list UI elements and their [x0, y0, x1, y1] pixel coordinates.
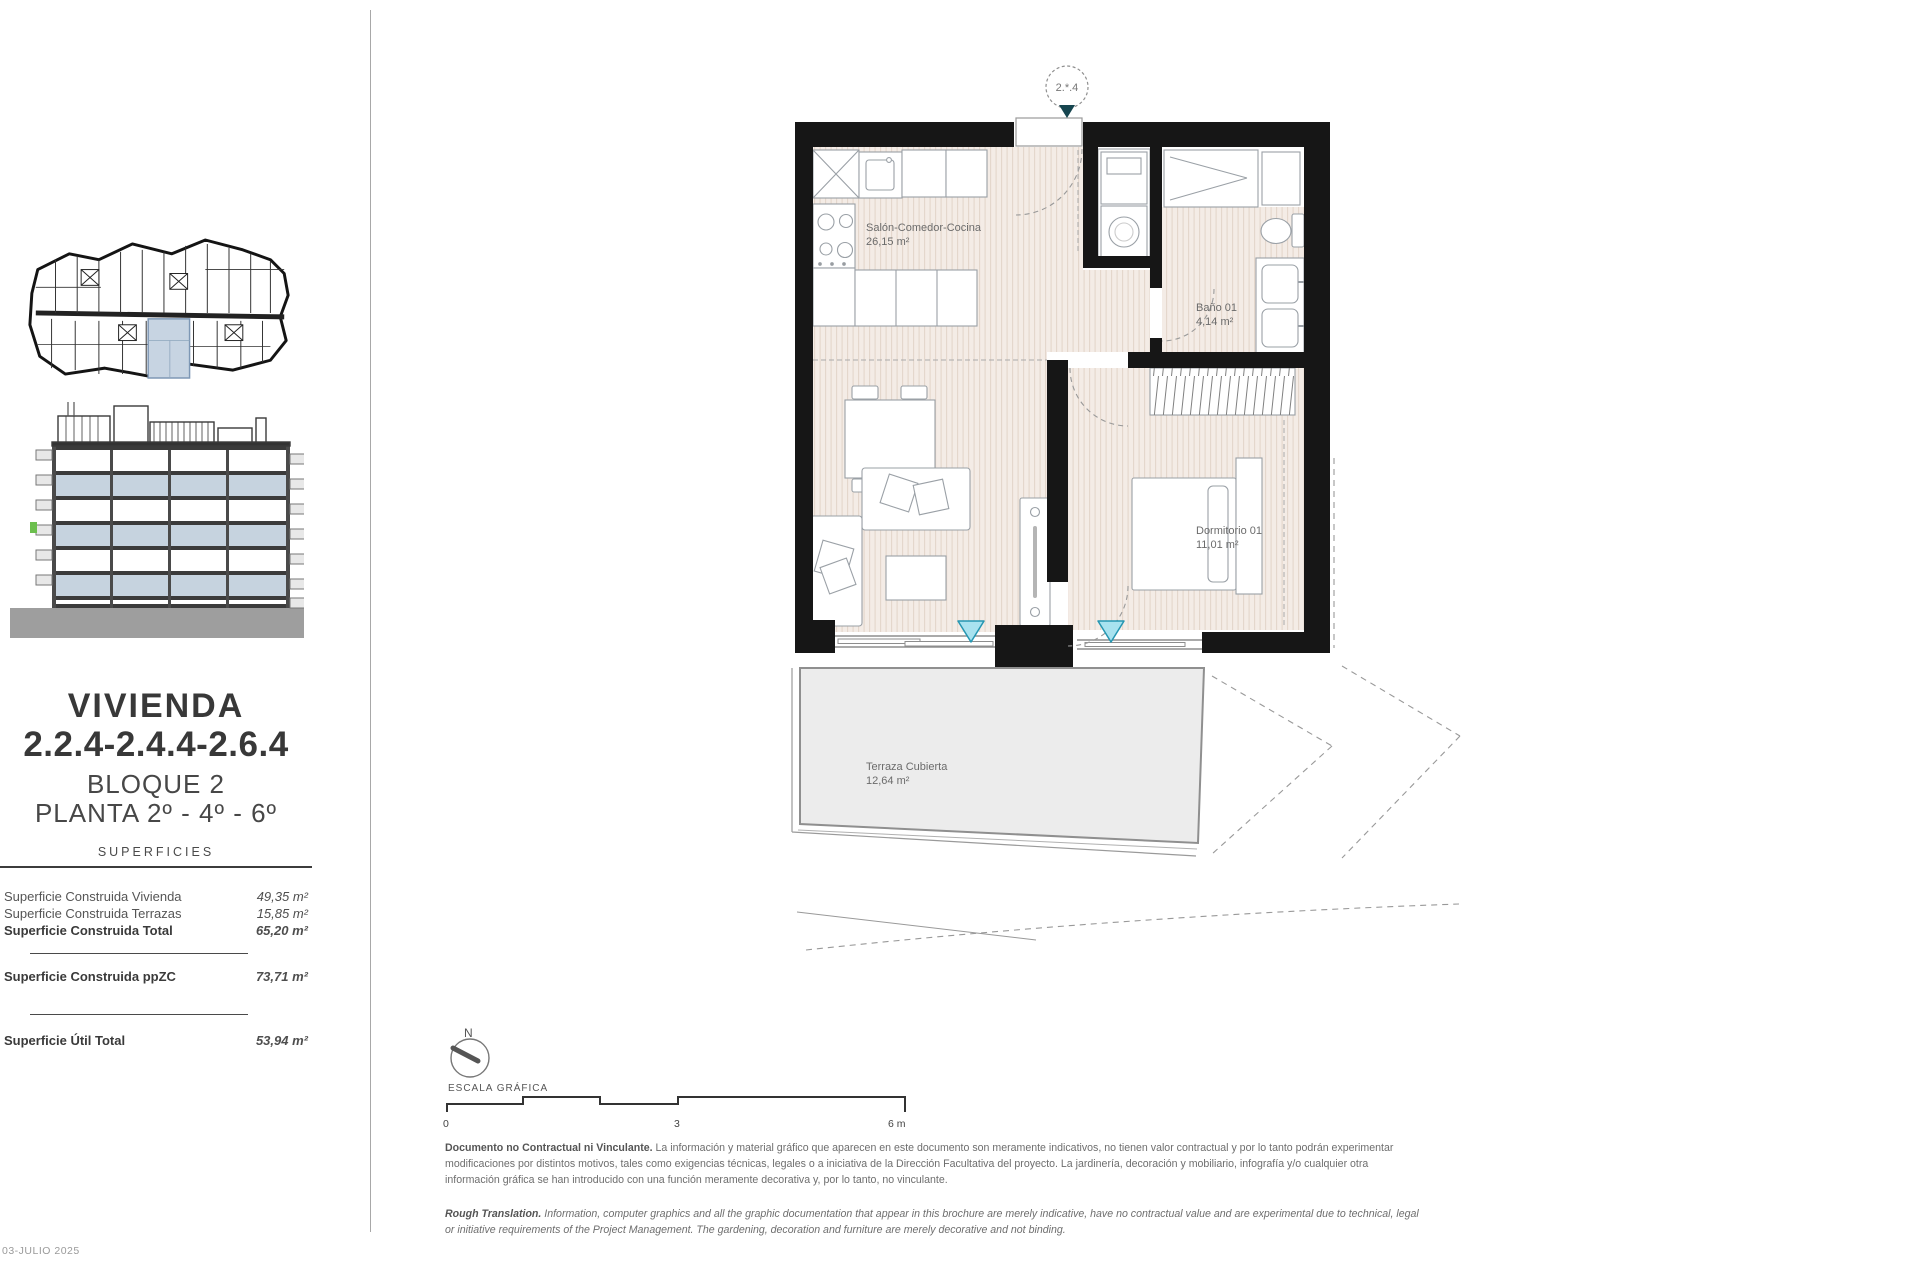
kitchen-counter	[813, 268, 855, 326]
kitchen-island	[855, 270, 977, 326]
bath-sink	[1262, 265, 1298, 303]
table-row: Superficie Construida Terrazas 15,85 m²	[4, 905, 308, 922]
scale-tick: 6 m	[888, 1118, 906, 1130]
bath-shelf	[1262, 152, 1300, 205]
kitchen-cabinet	[946, 150, 987, 197]
surface-value: 49,35 m²	[257, 888, 308, 905]
surfaces-heading: SUPERFICIES	[0, 845, 312, 859]
entrance-door	[1016, 118, 1082, 146]
page-title: VIVIENDA	[0, 688, 312, 725]
disclaimer-es: Documento no Contractual ni Vinculante. …	[445, 1141, 1423, 1189]
building-section-diagram	[10, 402, 304, 642]
chair	[901, 386, 927, 399]
surface-label: Superficie Construida Terrazas	[4, 905, 182, 922]
sliding-door-panel	[1085, 643, 1185, 647]
surface-value: 53,94 m²	[256, 1032, 308, 1049]
room-label: Dormitorio 01	[1196, 525, 1262, 537]
dining-table	[845, 400, 935, 478]
sidebar: VIVIENDA 2.2.4-2.4.4-2.6.4 BLOQUE 2 PLAN…	[0, 0, 312, 1280]
document-date: 03-JULIO 2025	[2, 1245, 80, 1257]
room-area: 11,01 m²	[1196, 539, 1239, 551]
table-row: Superficie Construida Total 65,20 m²	[4, 922, 308, 939]
disclaimer-block: Documento no Contractual ni Vinculante. …	[445, 1141, 1423, 1256]
window-marker-icon	[1098, 621, 1124, 642]
chair	[852, 386, 878, 399]
table-separator	[30, 953, 248, 954]
surfaces-table: Superficie Construida Vivienda 49,35 m² …	[4, 888, 308, 1049]
room-label: Salón-Comedor-Cocina	[866, 222, 982, 234]
north-label: N	[464, 1026, 473, 1040]
key-plan-highlighted-unit	[148, 319, 189, 378]
scale-tick: 0	[443, 1118, 449, 1130]
room-area: 26,15 m²	[866, 236, 910, 248]
ground	[10, 608, 304, 638]
table-row: Superficie Útil Total 53,94 m²	[4, 1032, 308, 1049]
laundry-closet	[1098, 149, 1150, 259]
unit-numbers: 2.2.4-2.4.4-2.6.4	[0, 725, 312, 765]
stove	[813, 204, 855, 268]
surface-value: 65,20 m²	[256, 922, 308, 939]
disclaimer-en: Rough Translation. Information, computer…	[445, 1207, 1423, 1239]
disclaimer-en-body: Information, computer graphics and all t…	[445, 1208, 1419, 1236]
site-line	[797, 912, 1036, 940]
terrace	[792, 668, 1204, 856]
table-separator	[30, 1014, 248, 1015]
surface-label: Superficie Construida Total	[4, 922, 173, 939]
scale-heading: ESCALA GRÁFICA	[448, 1081, 548, 1094]
floor-plan: 2.*.4 Salón-Comedor-Cocina 26,15 m² Baño…	[760, 40, 1480, 1040]
room-area: 4,14 m²	[1196, 316, 1234, 328]
room-area: 12,64 m²	[866, 775, 910, 787]
radiator	[1020, 498, 1050, 626]
floor-label: PLANTA 2º - 4º - 6º	[0, 798, 312, 829]
block-label: BLOQUE 2	[0, 770, 312, 799]
unit-ref-label: 2.*.4	[1056, 82, 1079, 94]
toilet	[1261, 219, 1291, 244]
surface-value: 15,85 m²	[257, 905, 308, 922]
rooftop-structures	[52, 402, 290, 446]
kitchen-cabinet	[902, 150, 946, 197]
section-marker-green	[30, 522, 37, 533]
north-needle	[453, 1048, 478, 1061]
table-row: Superficie Construida ppZC 73,71 m²	[4, 968, 308, 985]
table-row: Superficie Construida Vivienda 49,35 m²	[4, 888, 308, 905]
bath-sink	[1262, 309, 1298, 347]
surface-label: Superficie Construida ppZC	[4, 968, 176, 985]
scale-area: N ESCALA GRÁFICA 0 3 6 m	[430, 1015, 930, 1140]
coffee-table	[886, 556, 946, 600]
scale-bar	[447, 1097, 905, 1112]
room-label: Terraza Cubierta	[866, 761, 948, 773]
room-label: Baño 01	[1196, 302, 1237, 314]
title-block: VIVIENDA 2.2.4-2.4.4-2.6.4 BLOQUE 2 PLAN…	[0, 688, 312, 868]
scale-tick: 3	[674, 1118, 680, 1130]
building-key-plan	[22, 230, 298, 388]
entrance-marker-icon	[1059, 105, 1075, 118]
surface-value: 73,71 m²	[256, 968, 308, 985]
vertical-divider	[370, 10, 371, 1232]
surface-label: Superficie Útil Total	[4, 1032, 125, 1049]
surfaces-rule	[0, 866, 312, 868]
disclaimer-en-title: Rough Translation.	[445, 1208, 541, 1220]
sliding-door-panel	[905, 642, 993, 647]
surface-label: Superficie Construida Vivienda	[4, 888, 182, 905]
disclaimer-es-title: Documento no Contractual ni Vinculante.	[445, 1142, 653, 1154]
